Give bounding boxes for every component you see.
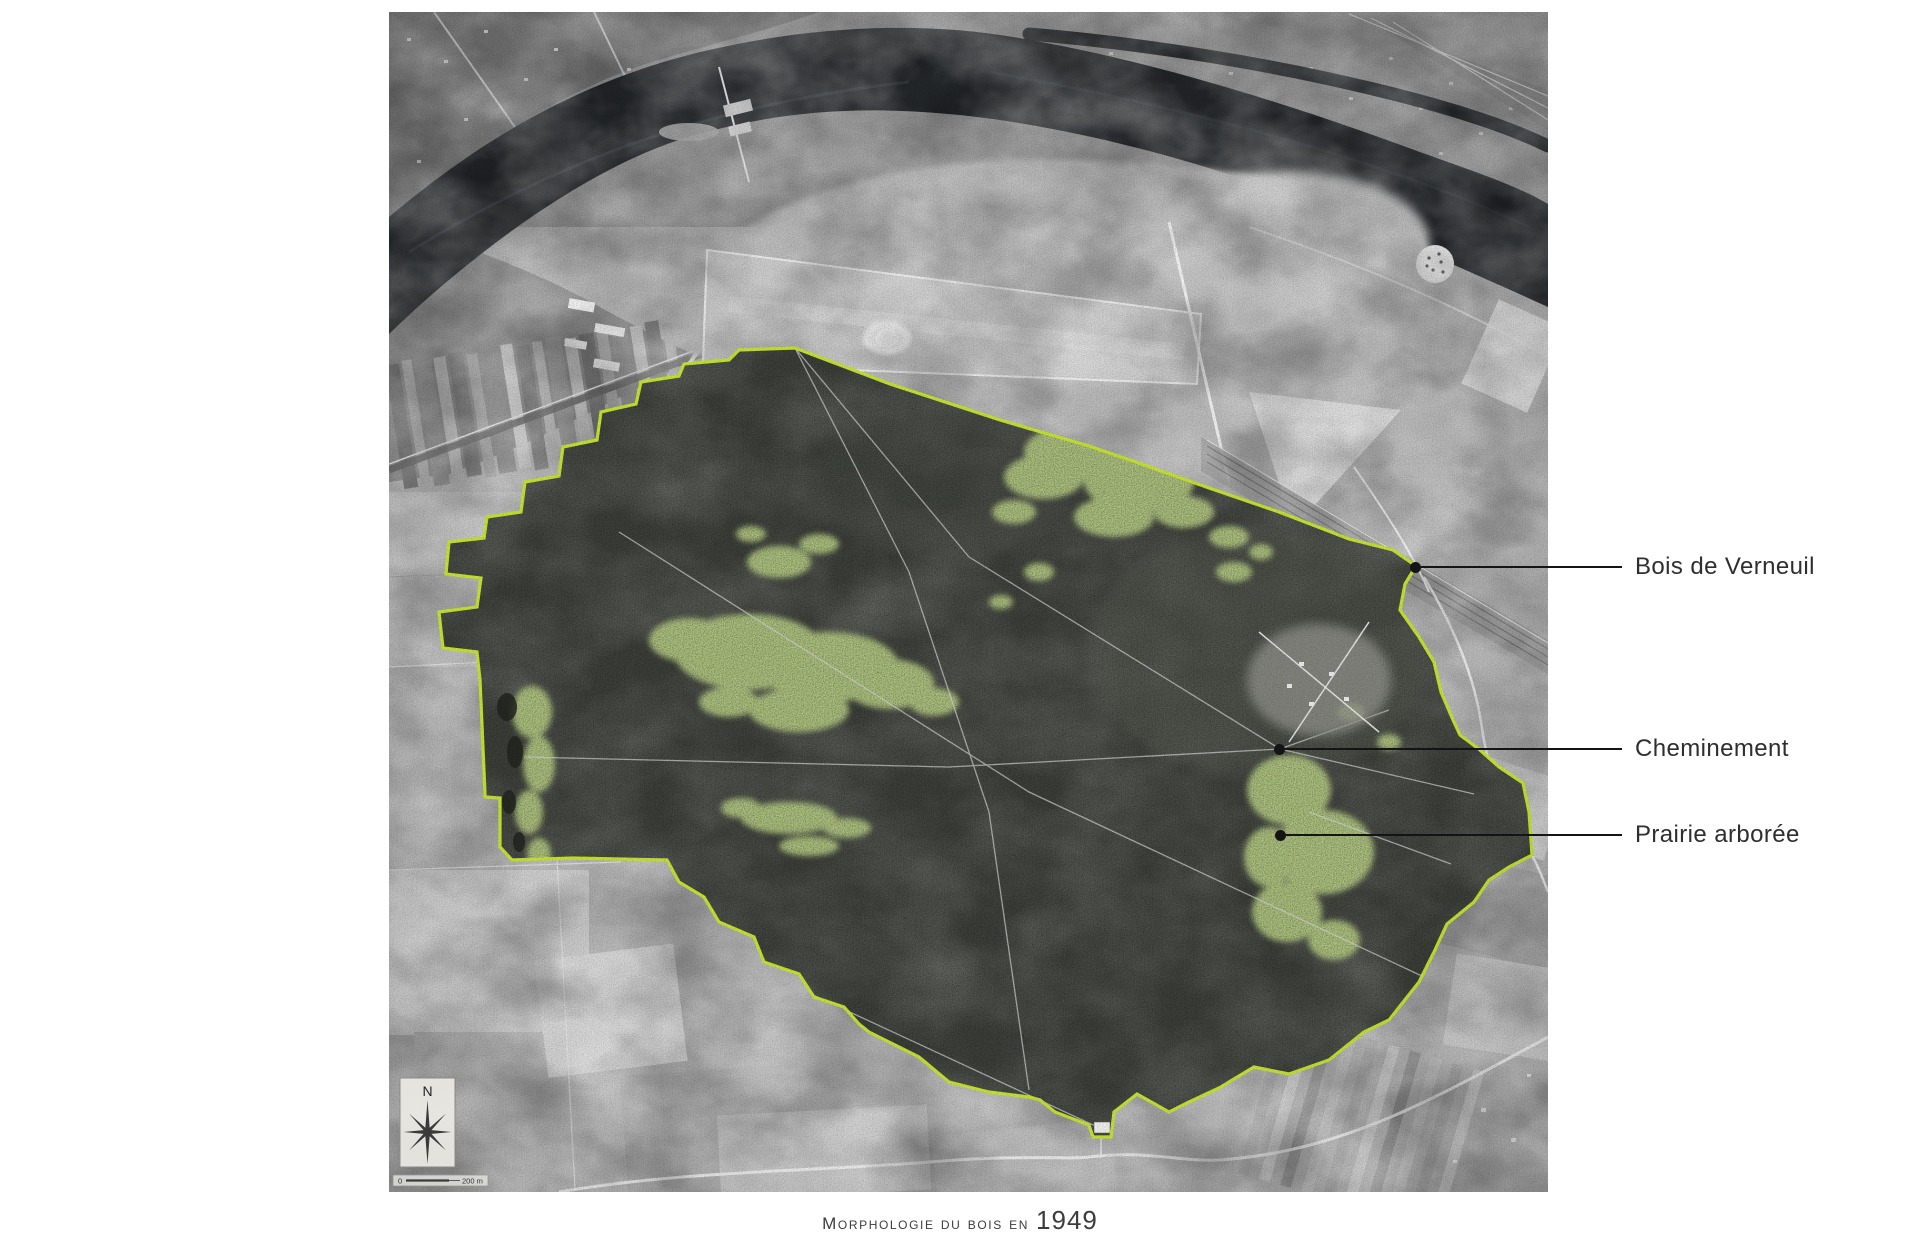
figure-caption: Morphologie du bois en1949: [0, 1205, 1920, 1236]
compass-rose: N: [400, 1078, 455, 1167]
annotation-label: Prairie arborée: [1635, 821, 1800, 849]
annotation-prairie-arboree: Prairie arborée: [1275, 821, 1800, 849]
annotation-label: Cheminement: [1635, 735, 1789, 763]
scale-bar: 0 200 m: [393, 1175, 488, 1186]
annotation-dot: [1274, 744, 1285, 755]
leader-line: [1286, 834, 1622, 836]
aerial-photo-1949: N 0 200 m: [389, 12, 1548, 1192]
annotation-dot: [1275, 830, 1286, 841]
annotation-label: Bois de Verneuil: [1635, 553, 1815, 581]
scale-bar-zero: 0: [398, 1177, 402, 1186]
document-page: N 0 200 m Bois de Verneuil Cheminement: [0, 0, 1920, 1240]
leader-line: [1421, 566, 1622, 568]
annotation-dot: [1410, 562, 1421, 573]
photo-vignette: [389, 12, 1548, 1192]
scale-bar-max: 200 m: [462, 1177, 483, 1186]
aerial-photo-canvas: N 0 200 m: [389, 12, 1548, 1192]
compass-north-label: N: [422, 1083, 432, 1099]
caption-year: 1949: [1036, 1205, 1098, 1235]
annotation-cheminement: Cheminement: [1274, 735, 1789, 763]
caption-text: Morphologie du bois en: [822, 1214, 1029, 1233]
annotation-bois-de-verneuil: Bois de Verneuil: [1410, 553, 1815, 581]
leader-line: [1285, 748, 1622, 750]
